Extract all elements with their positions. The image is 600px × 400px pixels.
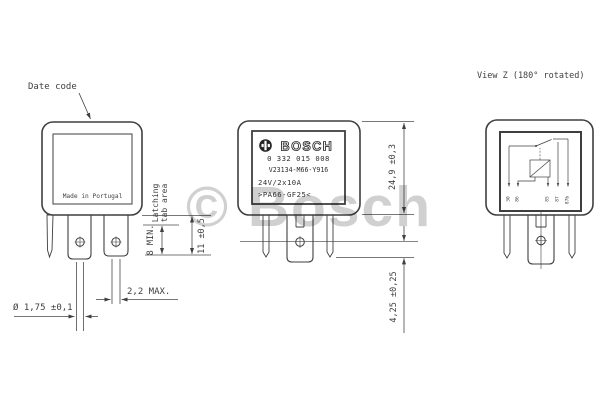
dim-body-height-text: 24,9 ±0,3	[388, 144, 398, 190]
label-rating: 24V/2x10A	[258, 178, 301, 187]
relay-view-z	[486, 120, 593, 269]
dim-8min-text: 8 MIN.	[146, 225, 156, 256]
label-type-code: V23134-M66-Y916	[252, 166, 345, 174]
latching-tab-area-label: Latching tab area	[151, 184, 169, 223]
side-tab-pin	[47, 215, 53, 257]
dim-tab-thickness-text: 2,2 MAX.	[127, 287, 170, 297]
viewz-pin-label-30: 30	[507, 196, 512, 201]
dim-hole-diameter-text: Ø 1,75 ±0,1	[13, 303, 73, 313]
pin-1-hole	[75, 237, 86, 248]
dim-11-text: 11 ±0,5	[197, 218, 207, 254]
pin-2-hole	[111, 237, 122, 248]
relay-body-side	[42, 122, 142, 215]
relay-circuit-schematic	[509, 139, 568, 187]
label-part-number: 0 332 015 008	[252, 154, 345, 163]
terminal-pin-1	[68, 215, 91, 259]
relay-body-viewz	[486, 120, 593, 215]
viewz-pin-label-85: 85	[546, 196, 551, 201]
bosch-logotype: BOSCH	[281, 140, 334, 154]
date-code-label: Date code	[28, 82, 77, 92]
terminal-pin-2	[104, 215, 128, 256]
viewz-pin-label-87b: 87b	[566, 196, 571, 204]
viewz-pin-label-86: 86	[516, 196, 521, 201]
viewz-pin-label-87: 87	[556, 196, 561, 201]
date-code-leader-arrow	[79, 93, 91, 119]
dim-tip-offset-text: 4,25 ±0,25	[389, 271, 399, 322]
technical-drawing-page: © Bosch	[0, 0, 600, 400]
bosch-logo-icon	[259, 139, 272, 152]
view-z-title: View Z (180° rotated)	[477, 71, 584, 81]
made-in-portugal-label: Made in Portugal	[53, 193, 132, 200]
label-material: >PA66-GF25<	[258, 190, 311, 199]
switch-blade	[536, 140, 552, 147]
viewz-pin-right	[569, 215, 575, 258]
side-view-dimensions	[14, 216, 211, 332]
relay-side-view	[42, 93, 142, 259]
viewz-pin-left	[504, 215, 510, 258]
